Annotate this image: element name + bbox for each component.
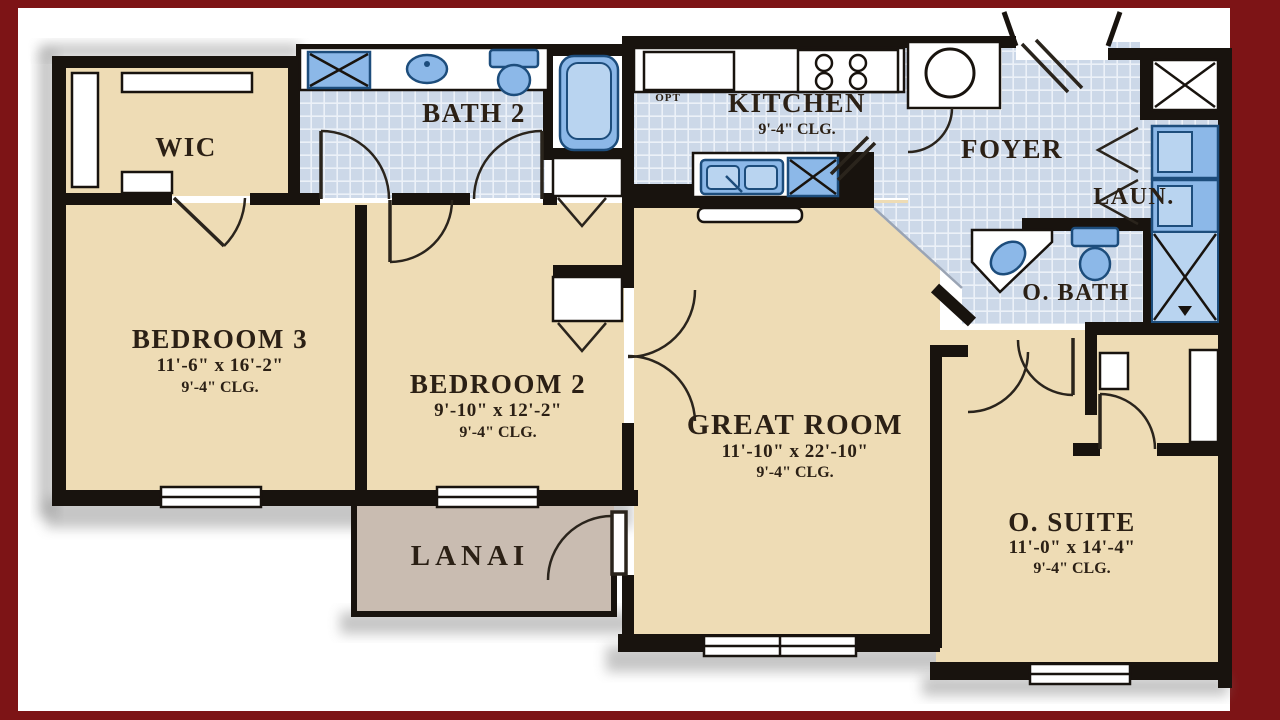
bathtub-inner xyxy=(567,63,611,139)
osuite-window xyxy=(1030,664,1130,684)
kitchen-stove xyxy=(798,50,898,92)
greatroom-window xyxy=(704,636,856,656)
kitchen-clg: 9'-4" CLG. xyxy=(758,121,835,138)
greatroom-clg: 9'-4" CLG. xyxy=(756,464,833,481)
bedroom3-window xyxy=(161,487,261,507)
kitchen-label: KITCHEN xyxy=(728,88,866,118)
breakfast-bar-ledge xyxy=(698,208,802,222)
kitchen-opt-appliance xyxy=(644,52,734,90)
kitchen-dishwasher xyxy=(788,158,838,196)
lanai-door-leaf xyxy=(612,512,626,574)
bedroom2-clg: 9'-4" CLG. xyxy=(459,424,536,441)
bedroom2-dims: 9'-10" x 12'-2" xyxy=(434,400,562,421)
entry-closet xyxy=(1152,60,1218,110)
osuite-label: O. SUITE xyxy=(1008,507,1136,537)
bath2-label: BATH 2 xyxy=(422,98,526,128)
bedroom2-window xyxy=(437,487,538,507)
floor-plan: WIC BATH 2 KITCHEN 9'-4" CLG. OPT FOYER … xyxy=(0,0,1280,720)
wic-label: WIC xyxy=(155,132,217,162)
bedroom3-clg: 9'-4" CLG. xyxy=(181,379,258,396)
bedroom2-label: BEDROOM 2 xyxy=(410,369,586,399)
kitchen-sink xyxy=(701,160,783,194)
greatroom-dims: 11'-10" x 22'-10" xyxy=(722,441,869,462)
bedroom3-dims: 11'-6" x 16'-2" xyxy=(157,355,284,376)
bedroom3-label: BEDROOM 3 xyxy=(132,324,308,354)
obath-shower xyxy=(1152,232,1218,322)
kitchen-opt-label: OPT xyxy=(655,92,681,104)
greatroom-label: GREAT ROOM xyxy=(687,409,903,441)
osuite-clg: 9'-4" CLG. xyxy=(1033,560,1110,577)
osuite-dims: 11'-0" x 14'-4" xyxy=(1009,537,1136,558)
bedroom2-closet xyxy=(553,277,622,321)
linen-closet xyxy=(553,158,622,196)
obath-label: O. BATH xyxy=(1022,280,1129,306)
lanai-label: LANAI xyxy=(411,540,529,572)
bath2-sink xyxy=(407,55,447,83)
laundry-label: LAUN. xyxy=(1093,184,1175,210)
foyer-label: FOYER xyxy=(961,134,1063,164)
